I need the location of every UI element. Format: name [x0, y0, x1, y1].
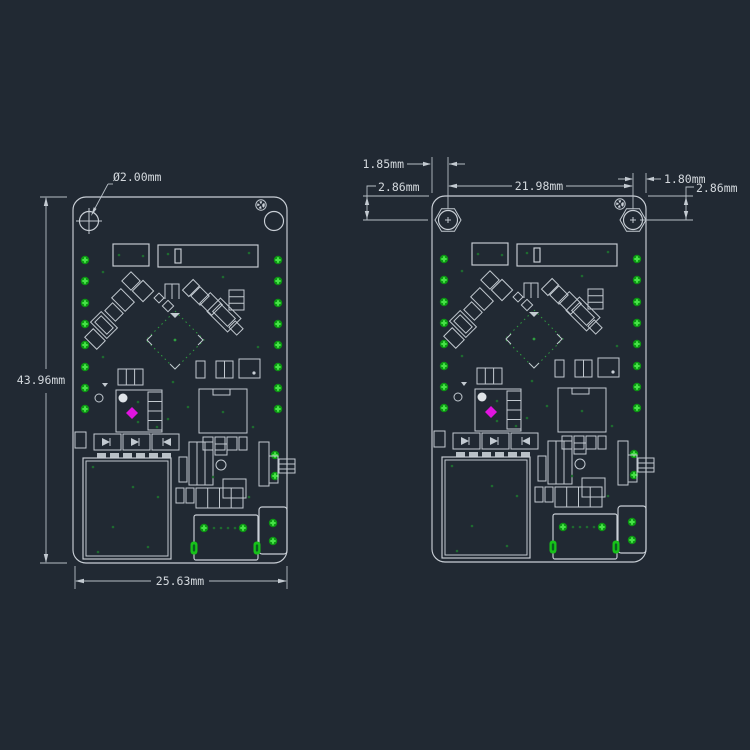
- dim-hole-diameter-label: Ø2.00mm: [113, 170, 162, 184]
- drawing-background: [0, 0, 750, 750]
- cad-drawing-canvas: Ø2.00mm 43.96mm 25.63mm: [0, 0, 750, 750]
- dim-hole-top-offset-right-label: 2.86mm: [696, 181, 738, 195]
- dim-board-width-label: 25.63mm: [156, 574, 205, 588]
- pcb-dimension-drawing: Ø2.00mm 43.96mm 25.63mm: [0, 0, 750, 750]
- dim-hole-top-offset-left-label: 2.86mm: [378, 180, 420, 194]
- dim-hole-spacing-label: 21.98mm: [515, 179, 564, 193]
- dim-left-hole-offset-label: 1.85mm: [362, 157, 404, 171]
- dim-board-height-label: 43.96mm: [17, 373, 66, 387]
